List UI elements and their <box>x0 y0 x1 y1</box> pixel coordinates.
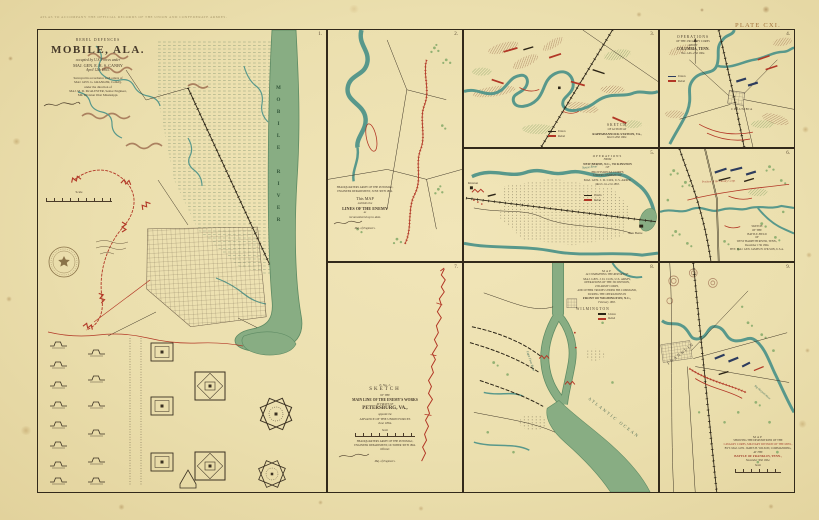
library-stamp <box>49 247 79 277</box>
fort-plan-diagrams <box>48 332 296 488</box>
subtitle-line: April 12th 1865. <box>42 68 154 73</box>
age-spot <box>8 56 13 61</box>
scale-bar <box>355 433 415 437</box>
age-spot <box>418 506 424 511</box>
age-spot <box>700 8 704 12</box>
hq-line: ENGINEER DEPARTMENT, JUNE 30TH 1864. <box>332 190 398 194</box>
panel-number: 3. <box>650 32 654 37</box>
legend-swatch-rebel <box>584 199 592 201</box>
panel-west-harpeth: Position of the Cavalry Corps SKETCHOF T… <box>659 148 795 262</box>
map-legend: Union Rebel <box>584 193 602 203</box>
caption-line: March 28th 1862. <box>579 136 655 140</box>
panel-rappahannock-station: SKETCH OF ACTION AT RAPPAHANNOCK STATION… <box>463 29 659 148</box>
legend-swatch-rebel <box>668 80 676 82</box>
panel-number: 9. <box>786 265 790 270</box>
caption-lines: OPERATIONS OF THE 3D DIVISION,23D ARMY C… <box>558 281 656 296</box>
age-spot <box>20 426 32 435</box>
age-spot <box>802 126 809 133</box>
panel-petersburg-sketch: E. No. 1. SKETCH OF THE MAIN LINE OF THE… <box>327 262 463 493</box>
newberne-title-block: OPERATIONS FROM NEW BERNE, N.C., TO KINS… <box>560 154 655 186</box>
caption-line: February 1865. <box>558 301 656 305</box>
scale-bar <box>46 198 112 202</box>
caption-line: Maj. of Engineers. <box>337 460 433 464</box>
panel-franklin: FRANKLIN Big Harpeth River MAP SHOWING T… <box>659 262 795 493</box>
wilmington-title-block: MAP ACCOMPANYING THE REPORT OF MAJ. GEN.… <box>558 269 656 326</box>
caption-line: PETERSBURG, VA., <box>337 406 433 413</box>
scale-label: Scale <box>337 429 433 433</box>
legend-swatch-rebel <box>598 318 606 320</box>
caption-lines: SKETCHOF THEBATTLE-FIELDOFWEST HARPETH R… <box>720 225 794 251</box>
map-legend: Union Rebel <box>548 129 566 139</box>
signature <box>332 219 366 227</box>
mobile-title-block: REBEL DEFENCES MOBILE, ALA. occupied by … <box>42 38 154 109</box>
signature <box>42 100 82 109</box>
scale-label: Scale <box>722 464 794 468</box>
rappahannock-caption: SKETCH OF ACTION AT RAPPAHANNOCK STATION… <box>579 123 655 140</box>
panel-number: 4. <box>786 32 790 37</box>
panel-number: 1. <box>318 32 322 37</box>
legend-swatch-union <box>548 131 556 133</box>
panel-number: 5. <box>650 151 654 156</box>
age-spot <box>805 348 810 353</box>
enemy-lines-title-block: HEADQUARTERS ARMY OF THE POTOMAC, ENGINE… <box>332 186 398 231</box>
legend-swatch-union <box>584 195 592 197</box>
panel-number: 2. <box>454 32 458 37</box>
caption-line: March 1st–21st 1865. <box>560 183 655 187</box>
sheet-header: ATLAS TO ACCOMPANY THE OFFICIAL RECORDS … <box>40 15 227 19</box>
panel-columbia: OPERATIONS OF THE 23D ARMY CORPS ABOUT C… <box>659 29 795 148</box>
scale-bar <box>735 469 781 473</box>
station-mark <box>558 87 561 90</box>
panel-lines-of-enemy: HEADQUARTERS ARMY OF THE POTOMAC, ENGINE… <box>327 29 463 262</box>
footer-lines: HEADQUARTERS ARMY OF THE POTOMAC,ENGINEE… <box>337 440 433 451</box>
caption-line: Maj. of Engineers. <box>332 227 398 231</box>
age-spot <box>118 504 125 510</box>
legend-swatch-rebel <box>548 135 556 137</box>
age-spot <box>12 138 21 145</box>
legend-label: Rebel <box>678 79 685 84</box>
petersburg-caption: E. No. 1. SKETCH OF THE MAIN LINE OF THE… <box>337 383 433 463</box>
panel-number: 7. <box>454 265 458 270</box>
town-label: New Berne <box>628 231 642 235</box>
franklin-caption: MAP SHOWING THE DISPOSITIONS OF THE CAVA… <box>722 435 794 473</box>
panel-number: 6. <box>786 151 790 156</box>
atlas-sheet: ATLAS TO ACCOMPANY THE OFFICIAL RECORDS … <box>0 0 819 520</box>
caption-line: November 30th 1864. <box>722 459 794 463</box>
union-positions <box>715 355 750 367</box>
kinston-mark <box>470 186 473 189</box>
age-spot <box>318 500 323 505</box>
map-legend: Union Rebel <box>668 74 686 84</box>
caption-line: SKETCH <box>337 387 433 394</box>
age-spot <box>348 5 360 13</box>
legend-label: Rebel <box>558 134 565 139</box>
caption-line: June 1864. <box>337 421 433 425</box>
newberne-mark <box>639 225 643 228</box>
hills <box>667 269 717 304</box>
signature <box>337 452 373 460</box>
age-spot <box>806 252 812 258</box>
river-label: MOBILE RIVER <box>276 86 281 336</box>
legend-swatch-union <box>598 313 606 315</box>
age-spot <box>768 504 774 509</box>
town-label: WILMINGTON <box>576 307 610 311</box>
legend-label: Rebel <box>608 316 615 321</box>
town-grid <box>728 90 745 105</box>
age-spot <box>6 296 12 302</box>
scale-label: Scale <box>46 190 112 194</box>
cavalry-positions <box>715 168 756 175</box>
panel-mobile-defences: REBEL DEFENCES MOBILE, ALA. occupied by … <box>37 29 327 493</box>
panel-number: 8. <box>650 265 654 270</box>
plate-number: PLATE CXI. <box>735 22 781 29</box>
legend-swatch-union <box>668 76 676 78</box>
credit-lines: Surveyed in accordance with orders ofMAJ… <box>42 76 154 98</box>
town-label: COLUMBIA <box>722 107 762 111</box>
map-legend: Union Rebel <box>598 312 616 322</box>
page-title: MOBILE, ALA. <box>42 43 154 58</box>
age-spot <box>762 6 770 13</box>
caption-line: Nov. 24th–27th 1864. <box>663 52 723 56</box>
age-spot <box>798 420 807 428</box>
age-spot <box>636 12 642 17</box>
legend-label: Rebel <box>594 198 601 203</box>
panel-wilmington: MAP ACCOMPANYING THE REPORT OF MAJ. GEN.… <box>463 262 659 493</box>
town-label: Kinston <box>468 181 478 185</box>
west-harpeth-caption: SKETCHOF THEBATTLE-FIELDOFWEST HARPETH R… <box>720 225 794 251</box>
panel-newberne-kinston: OPERATIONS FROM NEW BERNE, N.C., TO KINS… <box>463 148 659 262</box>
columbia-title-block: OPERATIONS OF THE 23D ARMY CORPS ABOUT C… <box>663 35 723 56</box>
